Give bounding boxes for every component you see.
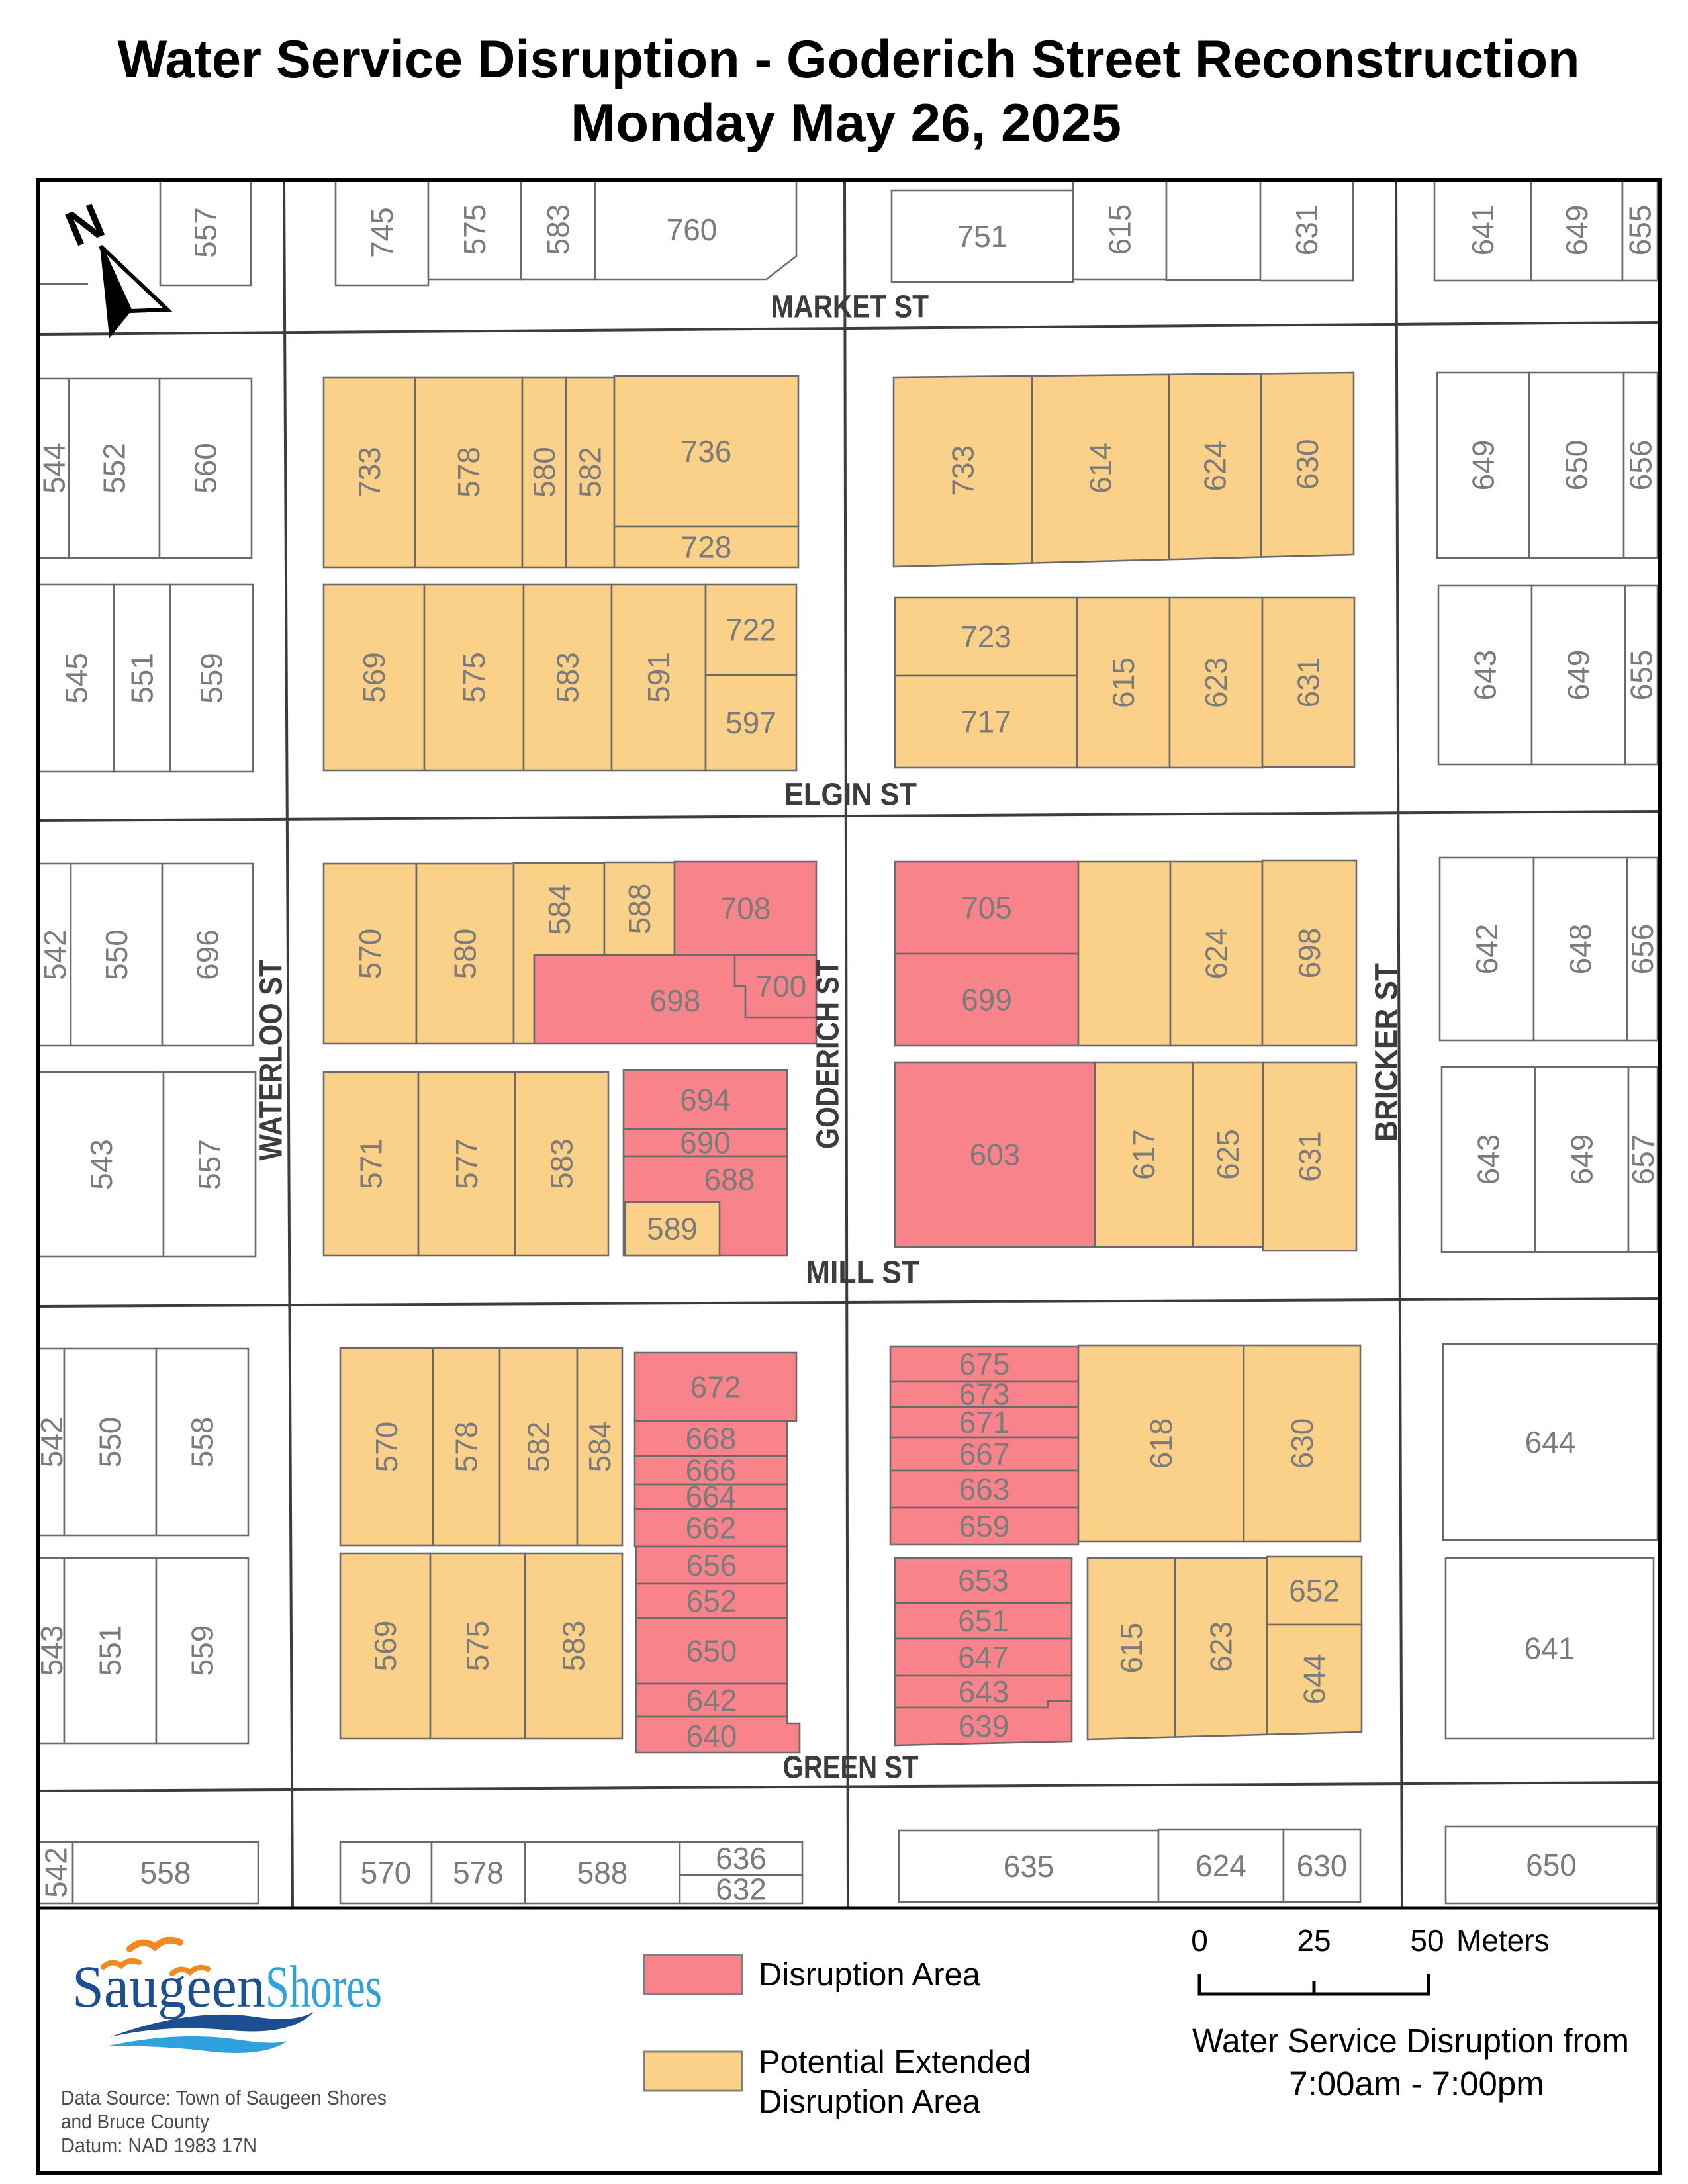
svg-text:578: 578: [453, 1856, 504, 1890]
svg-text:650: 650: [1560, 440, 1594, 491]
svg-text:GREEN ST: GREEN ST: [783, 1751, 919, 1786]
svg-text:543: 543: [84, 1139, 118, 1190]
svg-text:582: 582: [573, 447, 608, 498]
svg-text:699: 699: [961, 983, 1012, 1017]
svg-text:656: 656: [1624, 440, 1658, 491]
svg-text:551: 551: [125, 653, 160, 704]
svg-text:708: 708: [720, 891, 771, 926]
svg-text:655: 655: [1623, 205, 1658, 256]
svg-text:GODERICH ST: GODERICH ST: [811, 960, 846, 1149]
svg-text:578: 578: [451, 447, 486, 498]
svg-text:583: 583: [557, 1621, 591, 1672]
svg-text:575: 575: [461, 1621, 495, 1672]
svg-text:647: 647: [958, 1640, 1009, 1674]
svg-text:733: 733: [946, 445, 980, 496]
svg-text:570: 570: [369, 1422, 404, 1473]
svg-text:656: 656: [686, 1548, 737, 1582]
svg-text:551: 551: [93, 1625, 128, 1676]
svg-text:25: 25: [1297, 1923, 1331, 1958]
svg-text:652: 652: [686, 1584, 737, 1618]
svg-text:698: 698: [650, 983, 701, 1018]
svg-text:657: 657: [1626, 1134, 1660, 1185]
svg-text:557: 557: [189, 207, 223, 258]
svg-text:550: 550: [93, 1417, 128, 1468]
svg-text:559: 559: [195, 653, 229, 704]
svg-text:640: 640: [686, 1719, 737, 1753]
svg-text:WATERLOO ST: WATERLOO ST: [254, 960, 289, 1161]
svg-text:649: 649: [1466, 440, 1501, 491]
svg-text:700: 700: [756, 969, 807, 1003]
svg-text:571: 571: [354, 1138, 389, 1189]
svg-text:656: 656: [1625, 924, 1660, 975]
svg-text:559: 559: [185, 1625, 220, 1676]
svg-text:643: 643: [1468, 650, 1503, 701]
svg-text:688: 688: [704, 1162, 755, 1197]
svg-text:615: 615: [1114, 1623, 1149, 1674]
svg-text:7:00am - 7:00pm: 7:00am - 7:00pm: [1289, 2065, 1544, 2103]
svg-text:650: 650: [1526, 1848, 1577, 1882]
svg-text:570: 570: [353, 929, 387, 979]
svg-text:582: 582: [522, 1422, 556, 1473]
svg-text:552: 552: [97, 443, 132, 494]
svg-text:577: 577: [449, 1138, 484, 1189]
svg-text:Data Source: Town of Saugeen S: Data Source: Town of Saugeen Shores: [61, 2086, 387, 2109]
svg-text:584: 584: [542, 884, 577, 935]
svg-text:588: 588: [622, 884, 657, 934]
svg-text:636: 636: [716, 1841, 767, 1876]
svg-text:652: 652: [1289, 1574, 1340, 1608]
svg-text:630: 630: [1285, 1418, 1319, 1469]
svg-text:Water Service Disruption - God: Water Service Disruption - Goderich Stre…: [118, 30, 1580, 89]
svg-text:632: 632: [716, 1872, 767, 1907]
svg-text:589: 589: [647, 1212, 698, 1246]
svg-text:Potential Extended: Potential Extended: [759, 2044, 1031, 2080]
svg-text:624: 624: [1196, 1848, 1246, 1883]
svg-text:50: 50: [1410, 1923, 1444, 1958]
svg-text:624: 624: [1199, 929, 1234, 979]
svg-text:717: 717: [961, 705, 1011, 739]
svg-text:588: 588: [577, 1856, 628, 1890]
svg-text:641: 641: [1524, 1631, 1575, 1666]
svg-text:649: 649: [1560, 205, 1594, 256]
svg-text:580: 580: [448, 929, 483, 979]
svg-text:584: 584: [583, 1422, 617, 1473]
svg-text:614: 614: [1084, 443, 1118, 494]
svg-text:631: 631: [1289, 205, 1324, 256]
svg-text:651: 651: [958, 1604, 1009, 1638]
svg-text:623: 623: [1204, 1621, 1239, 1672]
svg-text:575: 575: [457, 205, 492, 255]
svg-text:Water Service Disruption from: Water Service Disruption from: [1192, 2022, 1629, 2060]
svg-text:542: 542: [39, 1847, 73, 1898]
svg-text:694: 694: [680, 1083, 731, 1117]
svg-text:639: 639: [959, 1709, 1009, 1743]
svg-text:Meters: Meters: [1456, 1923, 1550, 1958]
svg-text:728: 728: [681, 530, 732, 565]
svg-text:570: 570: [361, 1856, 412, 1890]
svg-text:MILL ST: MILL ST: [806, 1255, 919, 1291]
svg-text:653: 653: [958, 1563, 1009, 1598]
svg-text:623: 623: [1199, 657, 1233, 708]
svg-text:631: 631: [1291, 657, 1326, 708]
svg-text:630: 630: [1297, 1848, 1348, 1883]
svg-text:733: 733: [352, 447, 387, 498]
svg-text:723: 723: [961, 619, 1011, 654]
svg-text:0: 0: [1191, 1923, 1208, 1958]
svg-text:643: 643: [1472, 1134, 1506, 1185]
svg-text:649: 649: [1562, 650, 1596, 701]
svg-text:558: 558: [140, 1856, 191, 1890]
svg-text:745: 745: [365, 207, 399, 258]
svg-text:558: 558: [185, 1417, 220, 1468]
svg-text:671: 671: [959, 1405, 1010, 1439]
svg-text:655: 655: [1624, 650, 1659, 701]
svg-text:643: 643: [959, 1674, 1009, 1709]
svg-text:624: 624: [1198, 441, 1233, 492]
svg-text:Datum: NAD 1983 17N: Datum: NAD 1983 17N: [61, 2134, 257, 2157]
svg-text:ELGIN ST: ELGIN ST: [784, 778, 917, 813]
svg-text:696: 696: [191, 929, 225, 980]
svg-text:618: 618: [1144, 1418, 1178, 1469]
svg-text:659: 659: [959, 1509, 1010, 1543]
svg-text:BRICKER ST: BRICKER ST: [1370, 963, 1405, 1142]
svg-text:667: 667: [959, 1437, 1010, 1471]
svg-text:642: 642: [1470, 924, 1504, 975]
svg-text:583: 583: [545, 1138, 579, 1189]
svg-text:630: 630: [1290, 439, 1325, 490]
svg-text:and Bruce County: and Bruce County: [61, 2110, 209, 2133]
svg-text:648: 648: [1564, 924, 1598, 975]
svg-text:631: 631: [1293, 1131, 1327, 1182]
svg-text:635: 635: [1004, 1849, 1055, 1884]
svg-text:644: 644: [1297, 1654, 1332, 1705]
svg-text:578: 578: [449, 1422, 484, 1473]
svg-text:MARKET ST: MARKET ST: [771, 290, 929, 325]
svg-text:705: 705: [961, 891, 1012, 925]
svg-text:575: 575: [457, 652, 491, 703]
svg-text:580: 580: [527, 447, 561, 498]
svg-text:569: 569: [368, 1621, 402, 1672]
svg-text:597: 597: [726, 705, 776, 740]
svg-text:Disruption Area: Disruption Area: [759, 2084, 981, 2120]
svg-text:698: 698: [1292, 928, 1327, 979]
svg-text:662: 662: [686, 1511, 737, 1545]
svg-text:672: 672: [690, 1370, 741, 1404]
svg-text:591: 591: [641, 652, 676, 703]
svg-text:Monday May 26, 2025: Monday May 26, 2025: [571, 93, 1121, 153]
svg-text:Saugeen: Saugeen: [72, 1954, 265, 2020]
svg-text:583: 583: [551, 652, 585, 703]
svg-text:544: 544: [37, 443, 71, 494]
svg-text:760: 760: [667, 212, 718, 247]
svg-text:Shores: Shores: [265, 1954, 382, 2020]
svg-text:650: 650: [686, 1634, 737, 1668]
svg-text:560: 560: [189, 443, 223, 494]
svg-text:722: 722: [726, 613, 776, 647]
svg-text:644: 644: [1525, 1425, 1576, 1459]
svg-text:663: 663: [959, 1472, 1010, 1506]
svg-text:615: 615: [1103, 205, 1137, 255]
svg-text:649: 649: [1565, 1134, 1599, 1185]
svg-text:751: 751: [957, 219, 1008, 253]
svg-text:641: 641: [1466, 205, 1500, 256]
svg-text:625: 625: [1211, 1129, 1245, 1180]
svg-text:583: 583: [541, 205, 575, 255]
svg-text:668: 668: [686, 1422, 737, 1456]
svg-text:557: 557: [193, 1139, 227, 1190]
svg-text:642: 642: [686, 1683, 737, 1717]
svg-text:617: 617: [1127, 1129, 1161, 1180]
svg-text:675: 675: [959, 1347, 1010, 1381]
svg-text:690: 690: [680, 1126, 731, 1160]
svg-text:Disruption Area: Disruption Area: [759, 1957, 981, 1993]
svg-text:545: 545: [60, 653, 94, 704]
svg-text:736: 736: [681, 434, 732, 469]
svg-text:550: 550: [99, 929, 134, 980]
svg-text:542: 542: [38, 929, 72, 980]
svg-text:603: 603: [970, 1138, 1021, 1172]
svg-text:615: 615: [1106, 657, 1141, 708]
svg-text:569: 569: [357, 652, 391, 703]
